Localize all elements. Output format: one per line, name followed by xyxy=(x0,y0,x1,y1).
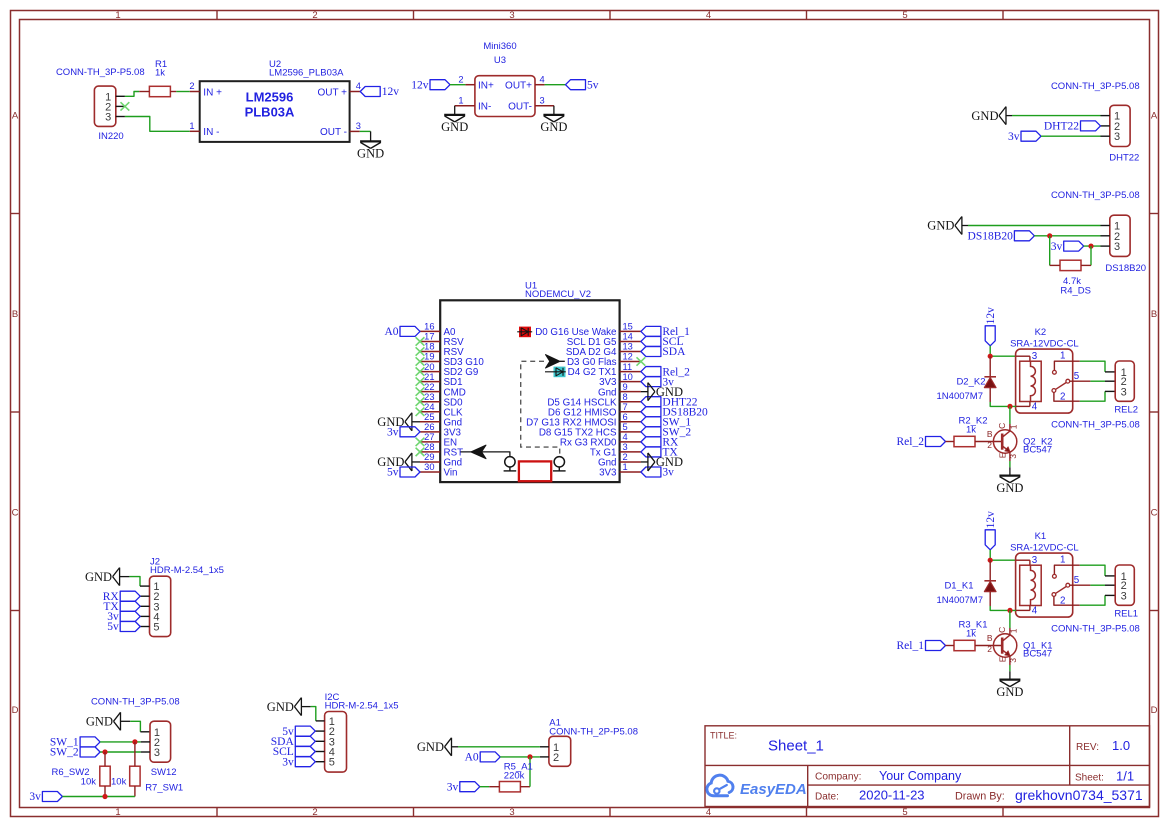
svg-text:2: 2 xyxy=(1060,391,1065,402)
svg-text:1: 1 xyxy=(623,462,628,472)
svg-text:CONN-TH_3P-P5.08: CONN-TH_3P-P5.08 xyxy=(91,696,180,707)
svg-text:GND: GND xyxy=(656,385,683,399)
svg-text:5: 5 xyxy=(623,422,628,432)
svg-text:D7 G13 RX2 HMOSI: D7 G13 RX2 HMOSI xyxy=(526,417,616,428)
svg-text:2: 2 xyxy=(623,452,628,462)
svg-text:2: 2 xyxy=(312,807,317,818)
svg-text:14: 14 xyxy=(623,332,633,342)
svg-text:3v: 3v xyxy=(1051,241,1063,253)
svg-text:30: 30 xyxy=(424,462,434,472)
svg-text:13: 13 xyxy=(623,342,633,352)
svg-text:grekhovn0734_5371: grekhovn0734_5371 xyxy=(1015,787,1143,803)
svg-text:29: 29 xyxy=(424,452,434,462)
svg-text:1: 1 xyxy=(1009,628,1019,633)
svg-text:D: D xyxy=(12,705,19,716)
svg-text:2: 2 xyxy=(987,644,992,654)
svg-text:17: 17 xyxy=(424,332,434,342)
svg-text:1k: 1k xyxy=(155,68,165,79)
svg-text:IN -: IN - xyxy=(203,127,219,138)
svg-text:3: 3 xyxy=(1114,131,1120,143)
svg-text:BC547: BC547 xyxy=(1023,649,1052,660)
svg-text:3v: 3v xyxy=(1008,131,1020,143)
svg-text:12v: 12v xyxy=(985,307,997,325)
svg-text:4: 4 xyxy=(623,432,628,442)
svg-text:TITLE:: TITLE: xyxy=(710,731,737,741)
svg-text:2: 2 xyxy=(189,81,194,91)
svg-text:Sheet:: Sheet: xyxy=(1075,773,1104,784)
svg-text:25: 25 xyxy=(424,412,434,422)
svg-text:A0: A0 xyxy=(384,326,398,338)
svg-text:3: 3 xyxy=(1032,351,1038,362)
svg-text:D4 G2 TX1: D4 G2 TX1 xyxy=(568,367,617,378)
svg-text:E: E xyxy=(998,656,1008,662)
svg-text:GND: GND xyxy=(540,120,567,134)
svg-text:23: 23 xyxy=(424,392,434,402)
svg-text:7: 7 xyxy=(623,402,628,412)
svg-text:1: 1 xyxy=(1009,424,1019,429)
svg-text:12v: 12v xyxy=(382,86,400,98)
svg-text:3V3: 3V3 xyxy=(599,377,617,388)
svg-text:1: 1 xyxy=(458,95,463,105)
svg-text:Rx G3 RXD0: Rx G3 RXD0 xyxy=(560,437,617,448)
svg-text:1: 1 xyxy=(189,121,194,131)
svg-text:A0: A0 xyxy=(465,752,479,764)
svg-text:IN+: IN+ xyxy=(478,80,494,91)
svg-text:GND: GND xyxy=(927,219,954,233)
svg-text:3: 3 xyxy=(105,112,111,124)
svg-text:1N4007M7: 1N4007M7 xyxy=(937,595,983,606)
svg-text:EasyEDA: EasyEDA xyxy=(740,781,807,798)
svg-text:1: 1 xyxy=(115,807,120,818)
svg-text:1N4007M7: 1N4007M7 xyxy=(937,391,983,402)
svg-text:Gnd: Gnd xyxy=(598,387,617,398)
svg-text:5: 5 xyxy=(902,10,907,21)
svg-text:18: 18 xyxy=(424,342,434,352)
svg-text:2: 2 xyxy=(553,752,559,764)
svg-text:D6 G12 HMISO: D6 G12 HMISO xyxy=(548,407,617,418)
svg-text:3: 3 xyxy=(540,95,545,105)
svg-text:9: 9 xyxy=(623,382,628,392)
svg-text:B: B xyxy=(987,633,993,643)
svg-text:22: 22 xyxy=(424,382,434,392)
svg-text:SRA-12VDC-CL: SRA-12VDC-CL xyxy=(1010,542,1079,553)
svg-text:Rel_1: Rel_1 xyxy=(897,640,925,652)
svg-text:D1_K1: D1_K1 xyxy=(944,581,973,592)
svg-text:BC547: BC547 xyxy=(1023,445,1052,456)
svg-text:U3: U3 xyxy=(494,55,506,66)
svg-text:1/1: 1/1 xyxy=(1116,769,1134,784)
svg-text:4: 4 xyxy=(706,807,711,818)
svg-text:3: 3 xyxy=(1114,241,1120,253)
svg-text:3: 3 xyxy=(1008,658,1018,663)
svg-text:K2: K2 xyxy=(1035,327,1047,338)
svg-text:Drawn By:: Drawn By: xyxy=(955,791,1005,803)
svg-text:CONN-TH_3P-P5.08: CONN-TH_3P-P5.08 xyxy=(56,67,145,78)
svg-text:CONN-TH_3P-P5.08: CONN-TH_3P-P5.08 xyxy=(1051,624,1140,635)
svg-text:20: 20 xyxy=(424,362,434,372)
svg-text:Mini360: Mini360 xyxy=(483,41,516,52)
svg-text:1k: 1k xyxy=(966,628,976,639)
svg-text:B: B xyxy=(1151,309,1157,320)
svg-text:REV:: REV: xyxy=(1076,742,1099,753)
svg-text:R4_DS: R4_DS xyxy=(1060,286,1091,297)
svg-text:2: 2 xyxy=(312,10,317,21)
svg-text:CONN-TH_3P-P5.08: CONN-TH_3P-P5.08 xyxy=(1051,420,1140,431)
svg-text:SDA D2 G4: SDA D2 G4 xyxy=(566,347,617,358)
svg-text:12v: 12v xyxy=(411,79,429,91)
svg-text:K1: K1 xyxy=(1035,531,1047,542)
svg-text:2: 2 xyxy=(987,440,992,450)
svg-text:3: 3 xyxy=(509,807,514,818)
svg-text:C: C xyxy=(1151,508,1158,519)
svg-text:GND: GND xyxy=(357,147,384,161)
svg-text:SRA-12VDC-CL: SRA-12VDC-CL xyxy=(1010,338,1079,349)
svg-text:LM2596_PLB03A: LM2596_PLB03A xyxy=(269,68,344,79)
svg-text:OUT -: OUT - xyxy=(320,127,347,138)
svg-text:16: 16 xyxy=(424,322,434,332)
svg-text:A: A xyxy=(12,111,19,122)
svg-text:3: 3 xyxy=(356,121,361,131)
svg-text:3: 3 xyxy=(1032,555,1038,566)
svg-text:4: 4 xyxy=(356,81,361,91)
svg-text:2020-11-23: 2020-11-23 xyxy=(859,788,925,803)
svg-text:1: 1 xyxy=(1060,351,1065,362)
svg-text:3: 3 xyxy=(154,747,160,759)
svg-text:5v: 5v xyxy=(587,79,599,91)
svg-text:3: 3 xyxy=(1008,454,1018,459)
svg-text:6: 6 xyxy=(623,412,628,422)
svg-text:IN-: IN- xyxy=(478,101,491,112)
svg-text:B: B xyxy=(12,309,18,320)
svg-text:12: 12 xyxy=(623,352,633,362)
svg-text:GND: GND xyxy=(996,685,1023,699)
svg-text:GND: GND xyxy=(996,481,1023,495)
svg-text:NODEMCU_V2: NODEMCU_V2 xyxy=(525,289,591,300)
svg-text:3: 3 xyxy=(1121,386,1127,398)
svg-text:E: E xyxy=(998,452,1008,458)
svg-text:GND: GND xyxy=(417,740,444,754)
svg-text:Vin: Vin xyxy=(444,468,458,479)
svg-text:GND: GND xyxy=(971,109,998,123)
svg-text:3v: 3v xyxy=(29,791,41,803)
svg-text:GND: GND xyxy=(85,570,112,584)
svg-text:HDR-M-2.54_1x5: HDR-M-2.54_1x5 xyxy=(150,565,224,576)
svg-text:3: 3 xyxy=(1121,590,1127,602)
svg-text:4: 4 xyxy=(540,74,545,84)
svg-text:GND: GND xyxy=(441,120,468,134)
svg-text:D5 G14 HSCLK: D5 G14 HSCLK xyxy=(547,397,617,408)
svg-text:SDA: SDA xyxy=(662,346,686,358)
svg-text:Rel_2: Rel_2 xyxy=(897,436,925,448)
svg-text:5: 5 xyxy=(153,622,159,634)
svg-text:27: 27 xyxy=(424,432,434,442)
svg-text:3: 3 xyxy=(623,442,628,452)
svg-text:A: A xyxy=(1151,111,1158,122)
svg-text:OUT-: OUT- xyxy=(508,101,532,112)
svg-text:REL1: REL1 xyxy=(1114,609,1138,620)
svg-text:28: 28 xyxy=(424,442,434,452)
svg-text:2: 2 xyxy=(1060,595,1065,606)
svg-text:19: 19 xyxy=(424,352,434,362)
svg-text:GND: GND xyxy=(86,715,113,729)
svg-text:D0 G16 Use Wake: D0 G16 Use Wake xyxy=(535,327,617,338)
svg-text:SW_2: SW_2 xyxy=(50,747,79,759)
svg-text:CONN-TH_3P-P5.08: CONN-TH_3P-P5.08 xyxy=(1051,190,1140,201)
svg-text:Gnd: Gnd xyxy=(598,458,617,469)
svg-text:5v: 5v xyxy=(387,467,399,479)
svg-text:OUT +: OUT + xyxy=(317,87,347,98)
svg-text:D3 G0 Flas: D3 G0 Flas xyxy=(567,357,617,368)
svg-text:DS18B20: DS18B20 xyxy=(1105,263,1146,274)
svg-text:220k: 220k xyxy=(504,770,525,781)
svg-text:3V3: 3V3 xyxy=(599,468,617,479)
svg-text:CONN-TH_3P-P5.08: CONN-TH_3P-P5.08 xyxy=(1051,81,1140,92)
svg-text:3v: 3v xyxy=(282,756,294,768)
svg-text:3: 3 xyxy=(509,10,514,21)
svg-text:D8 G15 TX2 HCS: D8 G15 TX2 HCS xyxy=(539,427,617,438)
svg-text:GND: GND xyxy=(267,700,294,714)
svg-text:C: C xyxy=(997,423,1007,429)
svg-text:D2_K2: D2_K2 xyxy=(956,377,985,388)
svg-text:21: 21 xyxy=(424,372,434,382)
svg-text:11: 11 xyxy=(623,362,633,372)
svg-text:1k: 1k xyxy=(966,424,976,435)
svg-text:Date:: Date: xyxy=(815,792,839,803)
svg-text:5: 5 xyxy=(902,807,907,818)
svg-text:OUT+: OUT+ xyxy=(505,80,532,91)
svg-text:4: 4 xyxy=(706,10,711,21)
svg-text:10k: 10k xyxy=(111,777,127,788)
svg-text:IN220: IN220 xyxy=(98,131,123,142)
svg-text:HDR-M-2.54_1x5: HDR-M-2.54_1x5 xyxy=(325,701,399,712)
svg-text:GND: GND xyxy=(656,455,683,469)
svg-text:5: 5 xyxy=(329,757,335,769)
svg-text:5: 5 xyxy=(1074,575,1080,586)
svg-text:C: C xyxy=(997,627,1007,633)
svg-text:IN +: IN + xyxy=(203,87,222,98)
svg-text:B: B xyxy=(987,429,993,439)
svg-text:D: D xyxy=(1151,705,1158,716)
svg-text:LM2596: LM2596 xyxy=(246,89,294,104)
svg-text:3v: 3v xyxy=(447,781,459,793)
svg-text:5: 5 xyxy=(1074,371,1080,382)
svg-text:2: 2 xyxy=(458,74,463,84)
svg-text:12v: 12v xyxy=(985,511,997,529)
svg-text:10k: 10k xyxy=(81,777,97,788)
svg-text:4: 4 xyxy=(1032,401,1038,412)
svg-text:Your Company: Your Company xyxy=(879,769,962,783)
svg-text:5v: 5v xyxy=(107,621,119,633)
svg-text:DHT22: DHT22 xyxy=(1044,121,1079,133)
svg-text:1: 1 xyxy=(1060,555,1065,566)
svg-text:8: 8 xyxy=(623,392,628,402)
svg-text:DHT22: DHT22 xyxy=(1109,152,1139,163)
svg-text:SCL D1 G5: SCL D1 G5 xyxy=(567,337,617,348)
svg-text:3v: 3v xyxy=(387,427,399,439)
svg-text:PLB03A: PLB03A xyxy=(245,104,295,119)
svg-text:SW12: SW12 xyxy=(151,767,177,778)
svg-text:10: 10 xyxy=(623,372,633,382)
svg-text:26: 26 xyxy=(424,422,434,432)
svg-text:R7_SW1: R7_SW1 xyxy=(145,783,183,794)
svg-text:C: C xyxy=(12,508,19,519)
svg-text:Company:: Company: xyxy=(815,772,861,783)
svg-text:Tx G1: Tx G1 xyxy=(590,448,617,459)
svg-text:24: 24 xyxy=(424,402,434,412)
svg-text:Sheet_1: Sheet_1 xyxy=(768,738,824,755)
svg-text:4: 4 xyxy=(1032,605,1038,616)
svg-text:DS18B20: DS18B20 xyxy=(968,231,1014,243)
svg-text:1: 1 xyxy=(115,10,120,21)
svg-text:1.0: 1.0 xyxy=(1112,738,1130,753)
svg-text:REL2: REL2 xyxy=(1114,405,1138,416)
svg-text:15: 15 xyxy=(623,322,633,332)
